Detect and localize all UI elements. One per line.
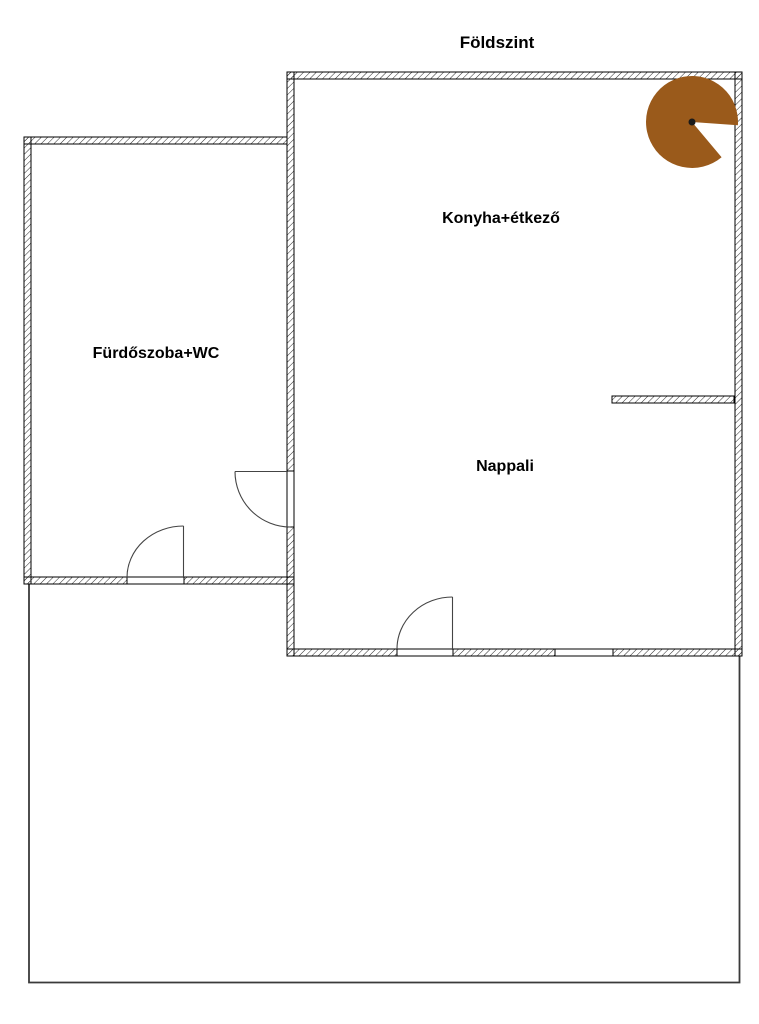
door-opening-bathroom-terrace [127,577,184,584]
door-swing-bathroom-living [235,472,291,528]
door-opening-bathroom-living [287,471,294,527]
door-arc [235,472,291,528]
wall-kitchen-bottom [287,649,742,656]
door-opening-living-terrace [397,649,453,656]
room-label-nappali: Nappali [476,458,534,475]
wall-kitchen-right [735,72,742,656]
wall-kitchen-top [287,72,742,79]
window-opening-living [555,649,613,656]
floor-plan-page: Földszint Konyha+étkező Fürdőszoba+WC Na… [0,0,759,1024]
door-arc [127,526,184,578]
wall-bathroom-left [24,137,31,584]
wall-bathroom-top [24,137,287,144]
spiral-stair-icon [646,76,738,168]
wall-partition-kitchen-living [612,396,734,403]
room-label-furdoszoba: Fürdőszoba+WC [93,345,220,362]
openings-group [127,471,613,656]
walls-group [24,72,742,656]
door-swing-bathroom-terrace [127,526,184,578]
door-swing-living-terrace [397,597,453,649]
terrace-outline [29,584,740,983]
room-label-konyha: Konyha+étkező [442,210,560,227]
wall-kitchen-left [287,72,294,656]
floor-plan-canvas: Földszint Konyha+étkező Fürdőszoba+WC Na… [0,0,759,1024]
spiral-stair-center-dot [689,119,696,126]
plan-title: Földszint [460,33,535,52]
door-arc [397,597,453,649]
